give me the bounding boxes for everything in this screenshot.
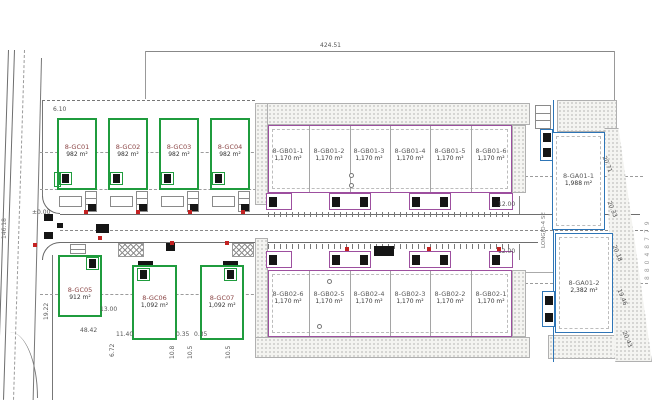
section-marker-icon [327,279,332,284]
dock-door-ticks [268,212,513,217]
unit-area: 1,170 m² [355,155,382,163]
dock-ramp [59,196,82,207]
unit-8-gc04: 8-GC04982 m² [210,140,250,162]
dimension-extension [145,51,146,99]
dimension-extension [614,51,615,103]
hydrant-marker [497,247,501,251]
unit-name: 8-GB01-5 [435,147,466,156]
stair-core-icon [227,270,234,279]
gate-icon [57,223,63,228]
dock-block [409,193,451,210]
unit-name: 8-GB01-1 [273,147,304,156]
hydrant-marker [427,247,431,251]
dimension-line [145,51,615,52]
unit-area: 2,382 m² [570,287,597,295]
dimension-total-width: 424.51 [320,42,341,49]
dimension-line [519,196,520,214]
unit-8-gc03: 8-GC03982 m² [159,140,199,162]
gate-icon [88,204,96,211]
unit-8-gc07: 8-GC071,092 m² [200,290,244,314]
dimension-text-vertical: 19.22 [43,296,50,320]
gate-icon [44,232,53,239]
unit-area: 1,170 m² [274,298,301,306]
unit-area: 1,092 m² [208,302,235,310]
stair-core-icon [140,270,147,279]
stair-core [137,268,150,281]
gravel-hatch-area [557,100,617,132]
section-marker-icon [349,183,354,188]
hydrant-marker [84,210,88,214]
gravel-hatch-area [255,103,530,125]
unit-8-gb01-5: 8-GB01-51,170 m² [430,143,470,167]
dock-block [266,251,292,268]
hydrant-marker [136,210,140,214]
hydrant-marker [241,210,245,214]
unit-area: 1,170 m² [477,298,504,306]
stair-core-icon [545,296,553,305]
dock-stair-stack [535,105,551,129]
stair-core-icon [269,255,277,265]
gravel-hatch-area [548,335,623,359]
parking-hatch [118,243,144,257]
stair-core-icon [545,313,553,322]
dock-block [409,251,451,268]
unit-name: 8-GB02-2 [435,290,466,299]
unit-area: 1,170 m² [315,155,342,163]
unit-name: 8-GB01-2 [314,147,345,156]
gravel-hatch-area [512,125,526,193]
unit-area: 1,170 m² [436,298,463,306]
north-boundary-line [42,100,255,101]
unit-name: 8-GC05 [68,286,93,295]
dimension-text: 0.35 [176,331,189,338]
gravel-hatch-area [255,337,530,358]
unit-area: 1,092 m² [141,302,168,310]
stair-core-icon [332,255,340,265]
stair-core-icon [440,197,448,207]
gate-icon [44,214,53,221]
unit-8-gc06: 8-GC061,092 m² [132,290,177,314]
dimension-text: 48.42 [80,327,97,334]
hydrant-marker [170,241,174,245]
unit-8-gc02: 8-GC02982 m² [108,140,148,162]
unit-8-gc05: 8-GC05912 m² [58,282,102,306]
stair-core-icon [332,197,340,207]
stair-core [212,172,225,185]
unit-8-gb01-4: 8-GB01-41,170 m² [390,143,430,167]
gravel-hatch-area [255,103,268,205]
stair-core [224,268,237,281]
hydrant-marker [345,247,349,251]
unit-name: 8-GA01-1 [563,172,594,181]
stair-core [86,257,99,270]
unit-name: 8-GB01-4 [395,147,426,156]
neighbor-lot-label: 88048779 [644,150,651,280]
section-marker-icon [349,173,354,178]
unit-name: 8-GB02-6 [273,290,304,299]
unit-8-gb02-1: 8-GB02-11,170 m² [471,286,511,310]
gravel-hatch-area [512,270,526,337]
unit-area: 912 m² [69,294,91,302]
unit-name: 8-GB02-1 [476,290,507,299]
stair-core-icon [360,255,368,265]
dock-stair-stack [70,244,86,254]
unit-8-gb02-2: 8-GB02-21,170 m² [430,286,470,310]
unit-8-gb01-1: 8-GB01-11,170 m² [268,143,308,167]
stair-core-icon [412,197,420,207]
west-boundary-line [42,100,43,196]
unit-area: 1,170 m² [477,155,504,163]
unit-8-gb01-6: 8-GB01-61,170 m² [471,143,511,167]
unit-name: 8-GC03 [167,143,192,152]
dock-block [329,251,371,268]
parking-hatch [232,243,254,257]
dock-ramp [212,196,235,207]
unit-8-ga01-1: 8-GA01-11,988 m² [552,168,605,192]
stair-core-icon [412,255,420,265]
unit-name: 8-GC06 [142,294,167,303]
stair-core-icon [215,174,222,183]
dimension-text-vertical: 10.5 [187,341,194,359]
unit-name: 8-GC01 [65,143,90,152]
unit-area: 982 m² [66,151,88,159]
guard-booth [54,172,61,187]
unit-area: 1,170 m² [396,298,423,306]
stair-core-icon [164,174,171,183]
dimension-text: 0.35 [194,331,207,338]
dimension-text-vertical: 6.72 [109,337,116,357]
hydrant-marker [225,241,229,245]
stair-core-icon [492,255,500,265]
unit-name: 8-GC07 [210,294,235,303]
section-marker-icon [317,324,322,329]
dimension-text-vertical: 10.8 [169,341,176,359]
hydrant-marker [98,236,102,240]
unit-name: 8-GC02 [116,143,141,152]
unit-name: 8-GB02-5 [314,290,345,299]
unit-name: 8-GB02-4 [354,290,385,299]
unit-area: 1,170 m² [396,155,423,163]
dock-block [329,193,371,210]
stair-core [161,172,174,185]
road-edge-line [33,58,42,400]
unit-name: 8-GB01-3 [354,147,385,156]
unit-area: 982 m² [168,151,190,159]
dimension-text-vertical: 146.18 [1,205,8,239]
unit-name: 8-GB01-6 [476,147,507,156]
dock-ramp [161,196,184,207]
site-plan-canvas: 424.51 8-GB01-11,170 m² 8-GB01-21,170 m²… [0,0,660,400]
unit-area: 1,170 m² [436,155,463,163]
stair-core-icon [543,133,551,142]
unit-8-gb02-5: 8-GB02-51,170 m² [309,286,349,310]
dimension-text: 13.00 [100,306,117,313]
unit-8-gb02-6: 8-GB02-61,170 m² [268,286,308,310]
unit-8-gb01-2: 8-GB01-21,170 m² [309,143,349,167]
stair-core [110,172,123,185]
dock-ramp [110,196,133,207]
dimension-text-vertical: 10.5 [225,341,232,359]
utility-box [96,224,109,233]
unit-8-gb01-3: 8-GB01-31,170 m² [349,143,389,167]
unit-area: 1,170 m² [355,298,382,306]
dimension-text: 11.40 [116,331,133,338]
unit-8-gc01: 8-GC01982 m² [57,140,97,162]
road-centerline [60,230,648,231]
dock-block [540,129,553,161]
side-label-vertical: LONGJO-4 SE [541,196,547,248]
unit-area: 1,988 m² [565,180,592,188]
gate-icon [139,204,147,211]
hydrant-marker [33,243,37,247]
dimension-road-width: 12.00 [498,201,515,208]
dimension-text: 6.10 [53,106,66,113]
unit-area: 1,170 m² [274,155,301,163]
stair-core-icon [89,259,96,268]
stair-core-icon [360,197,368,207]
stair-core-icon [440,255,448,265]
dock-block [266,193,292,210]
utility-box [374,246,394,256]
west-boundary-line [52,255,53,400]
unit-8-ga01-2: 8-GA01-22,382 m² [555,275,613,299]
unit-8-gb02-4: 8-GB02-41,170 m² [349,286,389,310]
dock-block [542,291,555,327]
stair-core-icon [113,174,120,183]
unit-name: 8-GB02-3 [395,290,426,299]
unit-area: 982 m² [117,151,139,159]
stair-core-icon [269,197,277,207]
unit-name: 8-GA01-2 [569,279,600,288]
hydrant-marker [188,210,192,214]
unit-name: 8-GC04 [218,143,243,152]
unit-area: 982 m² [219,151,241,159]
unit-8-gb02-3: 8-GB02-31,170 m² [390,286,430,310]
stair-core-icon [62,174,69,183]
dimension-line [519,244,520,260]
unit-area: 1,170 m² [315,298,342,306]
stair-core-icon [543,148,551,157]
